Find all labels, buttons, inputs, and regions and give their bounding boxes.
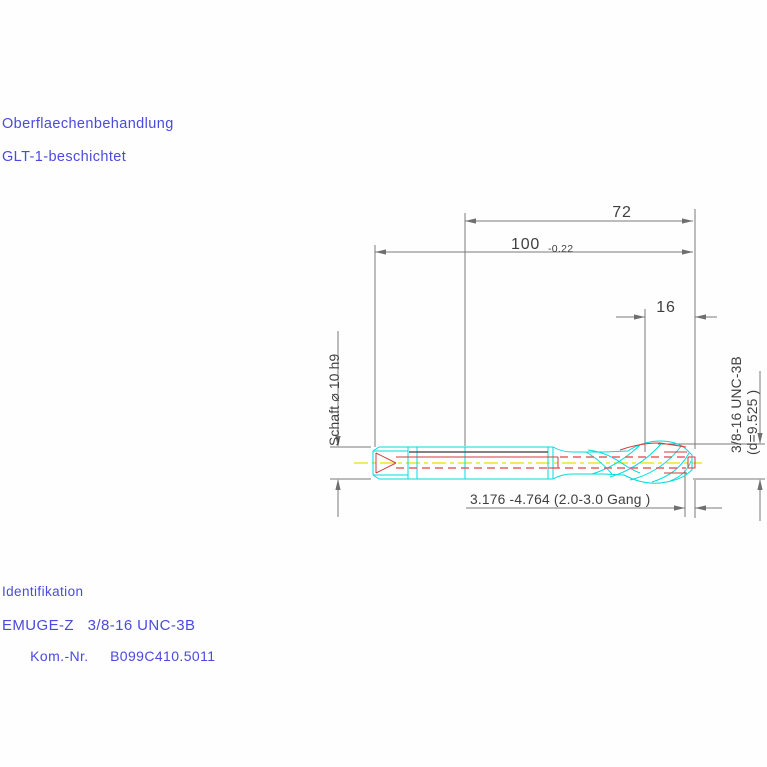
cad-drawing-sheet: Oberflaechenbehandlung GLT-1-beschichtet… [0, 0, 767, 767]
thread-designation-label: 3/8-16 UNC-3B [729, 356, 744, 453]
dimension-72: 72 [465, 204, 695, 449]
dim-72-value: 72 [612, 204, 631, 221]
tool-outline [373, 441, 692, 483]
drawing-canvas: 72 100 -0.22 16 Schaft [0, 0, 767, 767]
pitch-range-label: 3.176 -4.764 (2.0-3.0 Gang ) [470, 492, 650, 507]
dim-16-value: 16 [656, 299, 675, 316]
thread-diameter-label: (d=9.525 ) [745, 390, 760, 455]
dimension-16: 16 [616, 299, 717, 452]
dimension-shank: Schaft ⌀ 10 h9 [327, 331, 371, 517]
dimension-pitch: 3.176 -4.764 (2.0-3.0 Gang ) [466, 470, 722, 518]
dim-100-value: 100 [511, 236, 540, 253]
dim-100-tolerance: -0.22 [548, 243, 573, 255]
dimension-thread: 3/8-16 UNC-3B (d=9.525 ) [658, 356, 765, 521]
shank-diameter-label: Schaft ⌀ 10 h9 [327, 353, 342, 446]
tool-view [354, 441, 702, 483]
